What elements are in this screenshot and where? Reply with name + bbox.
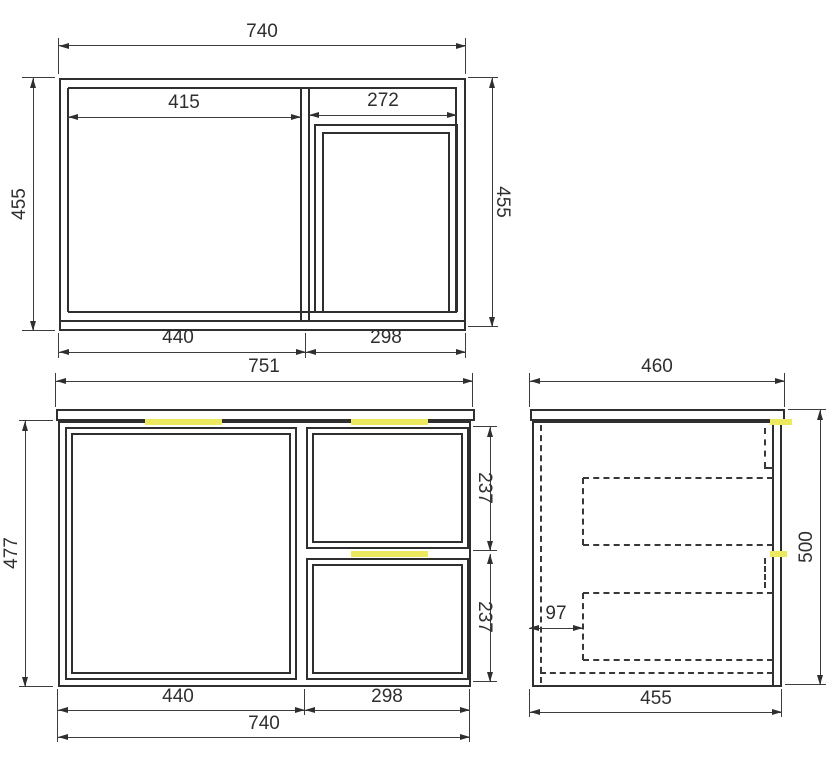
side-handle-highlight [770,551,787,557]
dim-line [530,712,782,713]
dimension-drawing: 740 415 272 455 455 440 29 [0,0,836,768]
side-cabinet-outline [532,421,782,687]
dim-label-benchtop-depth: 460 [641,356,673,378]
hidden-handle-line [764,558,766,588]
dim-label-cabinet-depth: 455 [640,688,672,710]
arrow-right-icon [772,709,782,715]
arrow-right-icon [573,625,583,631]
hidden-bottom-drawer-line [583,592,773,594]
arrow-down-icon [817,675,823,685]
hidden-back-panel-line [540,425,542,683]
hidden-handle-line [764,467,774,469]
dim-label-drawer-inset: 97 [545,603,566,625]
arrow-left-icon [530,709,540,715]
hidden-bottom-panel-line [540,672,773,674]
dim-label-overall-height: 500 [796,531,818,563]
hidden-bottom-drawer-line [583,659,773,661]
side-handle-highlight [770,419,792,425]
dim-line [820,410,821,685]
hidden-top-drawer-line [583,544,773,546]
side-benchtop-outline [530,409,785,421]
hidden-handle-line [764,428,766,468]
arrow-right-icon [775,378,785,384]
side-view: 460 97 500 [0,0,836,768]
hidden-top-drawer-line [583,477,773,479]
arrow-left-icon [529,625,539,631]
dim-line [530,381,785,382]
arrow-left-icon [530,378,540,384]
hidden-top-drawer-line [582,478,584,545]
arrow-up-icon [817,410,823,420]
